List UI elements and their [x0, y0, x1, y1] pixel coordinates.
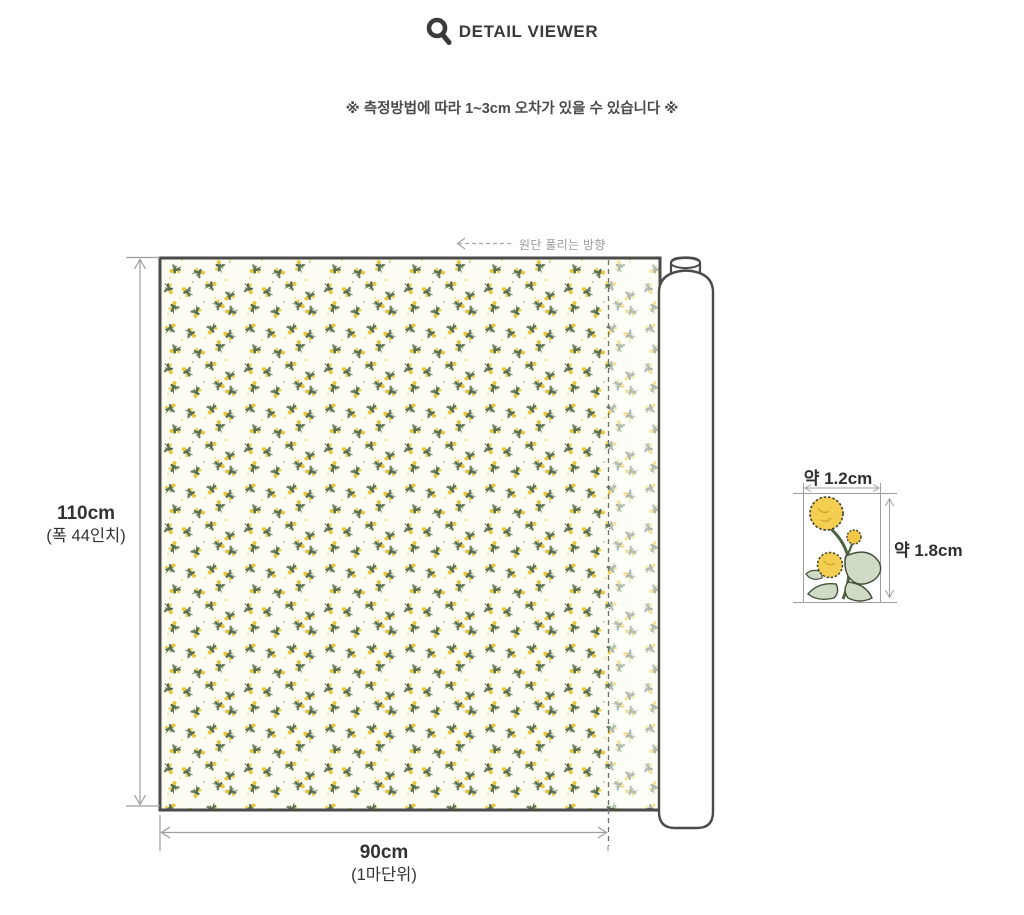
unroll-direction-label: 원단 풀리는 방향	[519, 236, 606, 253]
fabric-diagram-graphic	[0, 0, 1024, 915]
width-value: 90cm	[310, 841, 458, 865]
page-title: DETAIL VIEWER	[459, 22, 598, 42]
unroll-direction-arrow	[458, 238, 513, 249]
height-value: 110cm	[28, 502, 144, 526]
fabric-faded-section	[610, 260, 659, 808]
fabric-sheet	[160, 258, 660, 846]
fabric-roll	[659, 258, 713, 829]
measurement-notice: ※ 측정방법에 따라 1~3cm 오차가 있을 수 있습니다 ※	[0, 97, 1024, 118]
width-dimension-label: 90cm (1마단위)	[310, 841, 458, 886]
width-note: (1마단위)	[310, 865, 458, 886]
height-dimension-label: 110cm (폭 44인치)	[28, 502, 144, 547]
detail-viewer-page: DETAIL VIEWER ※ 측정방법에 따라 1~3cm 오차가 있을 수 …	[0, 0, 1024, 915]
height-note: (폭 44인치)	[28, 526, 144, 547]
roll-body	[659, 271, 713, 829]
motif-width-label: 약 1.2cm	[792, 464, 884, 489]
motif-height-label: 약 1.8cm	[894, 536, 963, 561]
magnifier-icon	[426, 16, 452, 47]
dandelion-motif-illustration	[806, 497, 881, 601]
motif-measure-box	[793, 483, 897, 603]
page-header: DETAIL VIEWER	[0, 16, 1024, 47]
